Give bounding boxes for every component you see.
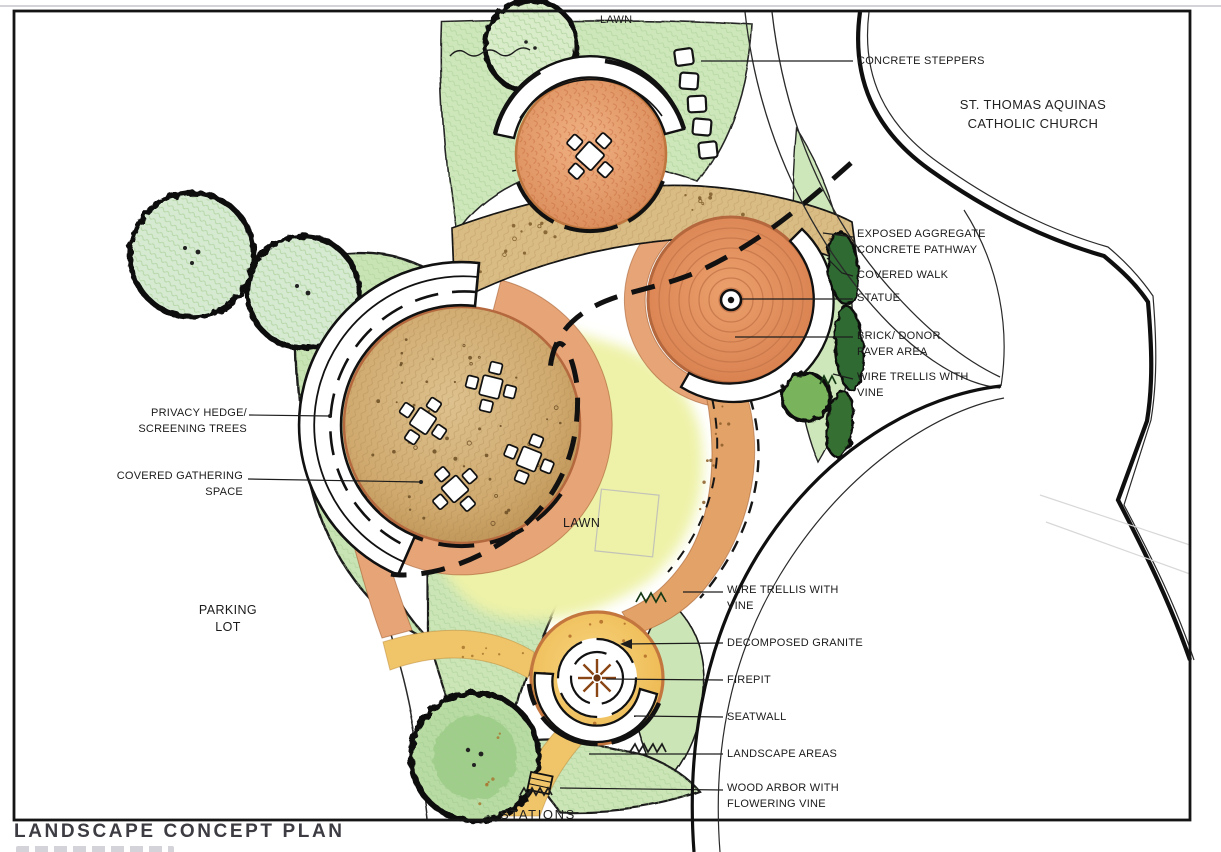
covered-gathering-line2: SPACE [83, 485, 243, 501]
seatwall-label: SEATWALL [727, 710, 786, 725]
wire-trellis-top-line2: VINE [857, 386, 969, 402]
wood-arbor-line2: FLOWERING VINE [727, 797, 839, 813]
flowering-tree [411, 693, 539, 821]
statue-label: STATUE [857, 291, 900, 306]
wood-arbor-label: WOOD ARBOR WITH FLOWERING VINE [727, 781, 839, 812]
landscape-areas-label: LANDSCAPE AREAS [727, 747, 837, 762]
brick-donor-line2: PAVER AREA [857, 345, 941, 361]
concrete-steppers-label: CONCRETE STEPPERS [857, 54, 985, 69]
church-name: ST. THOMAS AQUINAS CATHOLIC CHURCH [920, 95, 1146, 133]
wire-trellis-top-label: WIRE TRELLIS WITH VINE [857, 370, 969, 401]
subtitle-ghost-text [16, 846, 174, 852]
parking-line2: LOT [180, 619, 276, 636]
brick-donor-line1: BRICK/ DONOR [857, 329, 941, 345]
wood-arbor-line1: WOOD ARBOR WITH [727, 781, 839, 797]
lawn-top-label: LAWN [600, 13, 632, 28]
landscape-concept-plan: LAWN CONCRETE STEPPERS ST. THOMAS AQUINA… [0, 0, 1221, 852]
church-name-line2: CATHOLIC CHURCH [920, 114, 1146, 133]
brick-donor-label: BRICK/ DONOR PAVER AREA [857, 329, 941, 360]
wire-trellis-bottom-line2: VINE [727, 599, 839, 615]
covered-gathering-line1: COVERED GATHERING [83, 469, 243, 485]
exposed-aggregate-line1: EXPOSED AGGREGATE [857, 227, 986, 243]
privacy-hedge-line2: SCREENING TREES [97, 422, 247, 438]
wire-trellis-bottom-line1: WIRE TRELLIS WITH [727, 583, 839, 599]
firepit-icon [557, 638, 637, 718]
privacy-hedge-label: PRIVACY HEDGE/ SCREENING TREES [97, 406, 247, 437]
firepit-area [529, 612, 663, 744]
parking-line1: PARKING [180, 602, 276, 619]
stations-label: STATIONS [500, 807, 576, 822]
parking-lot-label: PARKING LOT [180, 602, 276, 636]
wire-trellis-bottom-label: WIRE TRELLIS WITH VINE [727, 583, 839, 614]
covered-gathering-label: COVERED GATHERING SPACE [83, 469, 243, 500]
exposed-aggregate-line2: CONCRETE PATHWAY [857, 243, 986, 259]
exposed-aggregate-label: EXPOSED AGGREGATE CONCRETE PATHWAY [857, 227, 986, 258]
lawn-center-label: LAWN [563, 516, 600, 531]
decomposed-granite-label: DECOMPOSED GRANITE [727, 636, 863, 651]
wire-trellis-top-line1: WIRE TRELLIS WITH [857, 370, 969, 386]
page-title: LANDSCAPE CONCEPT PLAN [14, 821, 345, 843]
church-name-line1: ST. THOMAS AQUINAS [920, 95, 1146, 114]
covered-walk-label: COVERED WALK [857, 268, 948, 283]
privacy-hedge-line1: PRIVACY HEDGE/ [97, 406, 247, 422]
firepit-label: FIREPIT [727, 673, 771, 688]
